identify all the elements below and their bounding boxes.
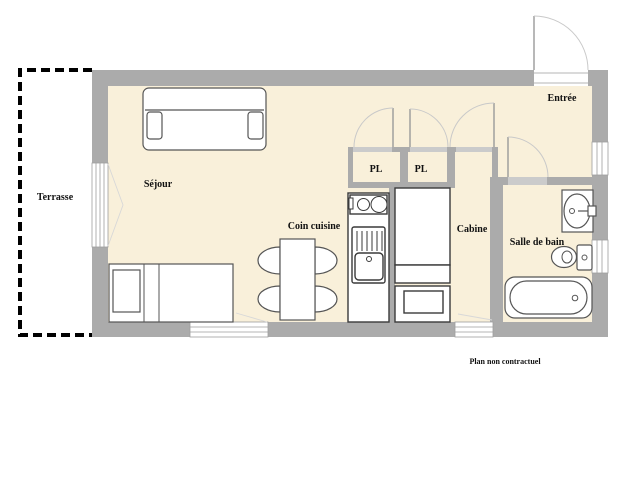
floor-plan: Terrasse Séjour Coin cuisine PL PL Cabin… xyxy=(0,0,640,492)
wall-left-lower xyxy=(92,247,108,337)
threshold-closet1 xyxy=(353,147,392,152)
sofa-armrest-right xyxy=(248,112,263,139)
bathtub xyxy=(505,277,592,318)
sofa xyxy=(143,88,266,150)
stove-burner-small xyxy=(358,199,370,211)
label-pl-left: PL xyxy=(370,164,383,175)
bunk-bottom-inset xyxy=(404,291,443,313)
label-salle-de-bain: Salle de bain xyxy=(510,237,565,248)
wall-between-closets xyxy=(400,147,408,188)
window-entree-right xyxy=(592,142,608,175)
entry-door-gap xyxy=(534,70,588,86)
kitchen-unit xyxy=(348,193,389,322)
label-terrasse: Terrasse xyxy=(37,192,74,203)
bunk-top-section xyxy=(395,188,450,265)
sofa-armrest-left xyxy=(147,112,162,139)
wall-closet1-left xyxy=(348,147,353,188)
wall-kitchen-divider xyxy=(389,188,395,322)
washbasin-drain xyxy=(570,209,575,214)
threshold-closet2 xyxy=(410,147,447,152)
washbasin-faucet xyxy=(588,206,596,216)
window-cabine-bottom xyxy=(455,322,493,337)
label-sejour: Séjour xyxy=(144,179,173,190)
label-entree: Entrée xyxy=(548,93,577,104)
wall-closets-bottom xyxy=(348,182,455,188)
wall-right-upper xyxy=(592,70,608,142)
wall-closet2-right xyxy=(447,147,455,188)
stove-knob-panel xyxy=(349,198,353,209)
bed xyxy=(109,264,233,322)
window-bathroom-right xyxy=(592,240,608,273)
door-entry-swing-arc xyxy=(534,16,588,70)
window-sejour-bottom xyxy=(190,322,268,337)
bunk-middle-band xyxy=(395,265,450,283)
sink-drain xyxy=(367,257,372,262)
bathtub-drain xyxy=(572,295,578,301)
toilet-bowl-inner xyxy=(562,251,572,263)
wall-bottom-middle xyxy=(268,322,455,337)
label-pl-right: PL xyxy=(415,164,428,175)
door-entry xyxy=(534,16,588,70)
stove-burner-large xyxy=(371,197,387,213)
dining-table xyxy=(280,239,315,320)
wall-top-left xyxy=(92,70,534,86)
label-footnote: Plan non contractuel xyxy=(469,357,541,366)
wall-right-lower xyxy=(592,273,608,337)
wall-bottom-right xyxy=(493,322,608,337)
toilet-flush-button xyxy=(582,255,587,260)
wall-bathroom-left xyxy=(490,185,503,322)
wall-left-upper xyxy=(92,70,108,163)
threshold-bathroom xyxy=(508,177,547,185)
threshold-cabine xyxy=(456,147,492,152)
bed-pillow xyxy=(113,270,140,312)
label-cabine: Cabine xyxy=(457,224,488,235)
floor-plan-drawing: Terrasse Séjour Coin cuisine PL PL Cabin… xyxy=(0,0,640,492)
cabine-bunk-unit xyxy=(395,188,450,322)
label-coin-cuisine: Coin cuisine xyxy=(288,221,341,232)
washbasin xyxy=(562,190,596,232)
